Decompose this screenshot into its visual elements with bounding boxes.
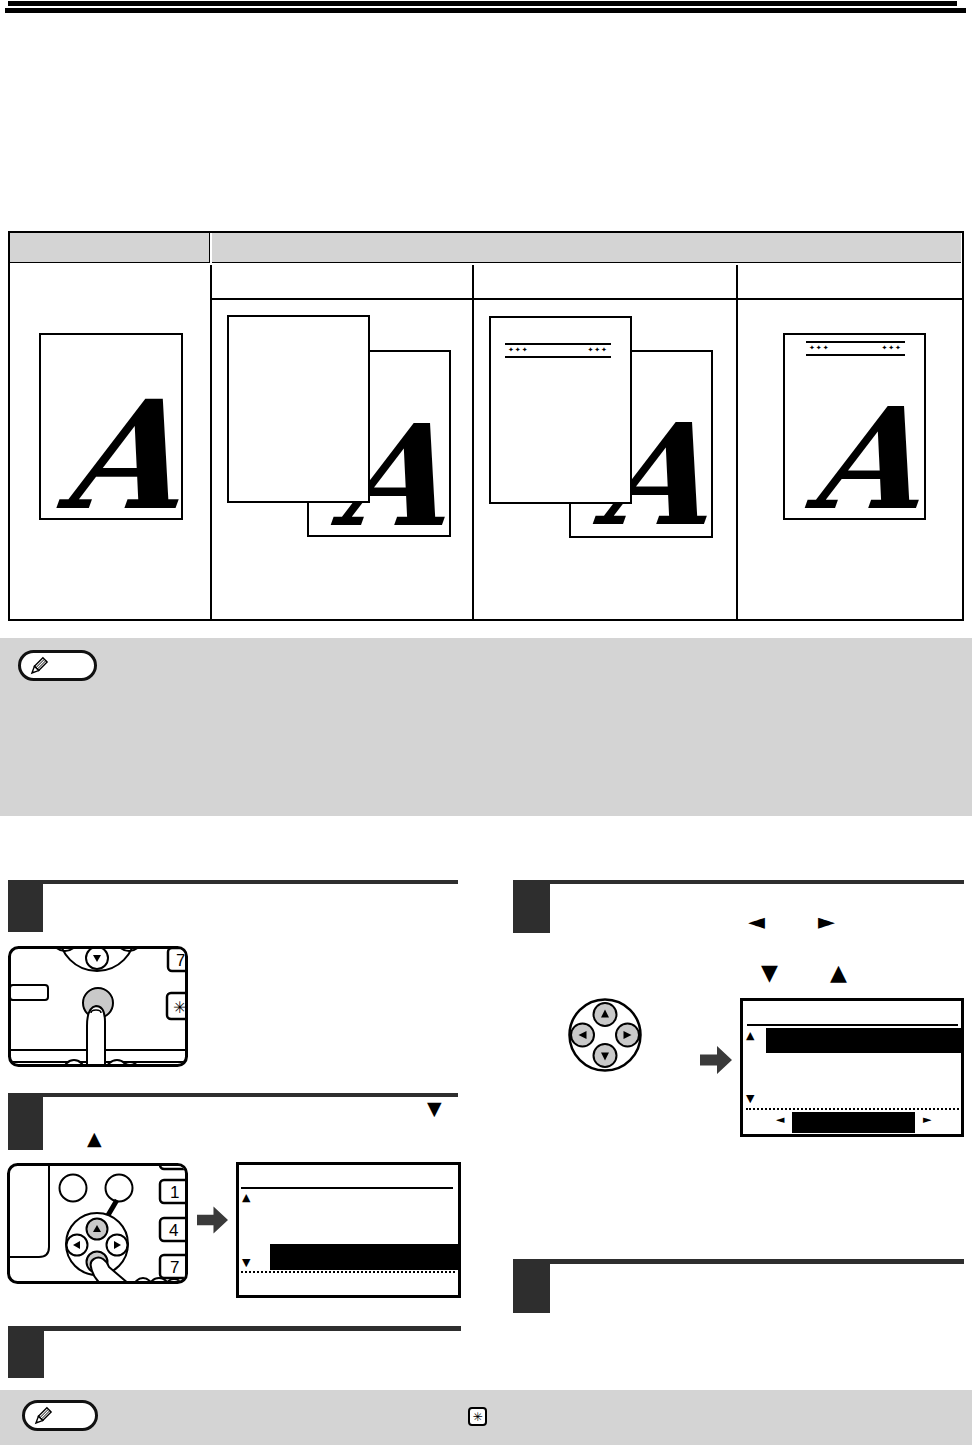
- scroll-up-icon: ▲: [242, 1192, 250, 1203]
- step-2-badge: [8, 1093, 43, 1150]
- lcd-dotted-divider: [746, 1108, 959, 1110]
- asterisk-key: ✳: [167, 993, 188, 1019]
- table-header-copy: [212, 233, 962, 263]
- step-1-rule: [8, 880, 458, 884]
- down-key-icon: ▼: [761, 962, 778, 984]
- corner-marks-left: ✦✦✦: [809, 345, 830, 352]
- top-bar-1: [8, 1, 957, 6]
- arrow-right-icon: [700, 1046, 732, 1074]
- svg-text:✳: ✳: [173, 999, 186, 1016]
- left-indicator-icon: ◄: [776, 1114, 784, 1125]
- scroll-down-icon: ▼: [746, 1093, 754, 1104]
- corner-marks: ✦✦✦ ✦✦✦: [806, 341, 905, 356]
- lcd-title-underline: [241, 1187, 453, 1189]
- up-key-icon: ▲: [87, 1129, 102, 1148]
- lcd-selected-row: [270, 1244, 458, 1270]
- table-subheader-line: [210, 298, 962, 300]
- control-panel-illustration-1: 7 ✳: [8, 946, 188, 1067]
- svg-text:7: 7: [176, 951, 185, 970]
- corner-marks-right: ✦✦✦: [587, 347, 608, 354]
- finger: [87, 1006, 105, 1067]
- up-key-icon: ▲: [830, 962, 847, 984]
- letter-a: A: [57, 401, 185, 511]
- step-1-badge: [8, 880, 43, 932]
- top-bar-2: [5, 8, 966, 13]
- table-divider-2: [472, 265, 474, 620]
- original-sheet: A: [39, 333, 183, 520]
- step-3-badge: [513, 880, 550, 933]
- lcd-screen-1: ▲ ▼ ◄ ►: [740, 998, 964, 1137]
- note-box-2: ✳: [0, 1390, 972, 1445]
- scroll-up-icon: ▲: [746, 1030, 754, 1041]
- svg-text:4: 4: [169, 1221, 178, 1240]
- left-key-icon: ◄: [748, 911, 765, 933]
- lcd-dotted-divider: [241, 1271, 455, 1273]
- lcd-bottom-selected-bar: [792, 1112, 915, 1133]
- manual-page: A A A ✦✦✦ ✦✦✦ ✦✦✦ ✦✦✦ A: [0, 0, 972, 1445]
- copy3-front-sheet: ✦✦✦ ✦✦✦: [489, 316, 632, 504]
- step-3-rule: [513, 880, 964, 884]
- key-7: 7: [160, 1255, 188, 1278]
- table-header-original: [10, 233, 210, 263]
- down-key-icon: ▼: [427, 1099, 442, 1118]
- copy4-sheet: ✦✦✦ ✦✦✦ A: [783, 333, 926, 520]
- step-4-badge: [513, 1259, 550, 1313]
- svg-text:7: 7: [170, 1258, 179, 1277]
- display-window: [10, 985, 48, 1000]
- pencil-icon: [26, 654, 50, 678]
- corner-marks-left: ✦✦✦: [508, 347, 529, 354]
- copy2-front-sheet: [227, 315, 370, 503]
- note-badge: [22, 1400, 98, 1431]
- right-key-icon: ►: [818, 911, 835, 933]
- right-indicator-icon: ►: [923, 1114, 931, 1125]
- svg-text:1: 1: [170, 1183, 179, 1202]
- step-2-rule: [8, 1093, 458, 1097]
- arrow-right-icon: [197, 1206, 228, 1234]
- table-divider-3: [736, 265, 738, 620]
- round-button-2: [106, 1175, 133, 1202]
- arrow-pad-illustration: [566, 997, 644, 1073]
- asterisk-key-label: ✳: [472, 1410, 482, 1424]
- letter-a: A: [806, 408, 925, 510]
- lcd-screen-2: ▲ ▼: [236, 1162, 461, 1298]
- lcd-title-underline: [747, 1024, 958, 1026]
- key-4: 4: [160, 1218, 188, 1241]
- pencil-icon: [30, 1404, 54, 1428]
- step-5-badge: [8, 1326, 44, 1378]
- table-divider-1: [210, 265, 212, 620]
- asterisk-key: ✳: [468, 1407, 487, 1426]
- round-button-1: [60, 1175, 87, 1202]
- corner-marks-right: ✦✦✦: [881, 345, 902, 352]
- control-panel-illustration-2: 1 4 7: [7, 1163, 188, 1284]
- note-badge: [18, 650, 97, 681]
- step-5-rule: [8, 1326, 461, 1331]
- note-box-1: [0, 638, 972, 816]
- step-4-rule: [513, 1259, 964, 1264]
- lcd-selected-row: [766, 1028, 961, 1053]
- corner-marks: ✦✦✦ ✦✦✦: [505, 343, 611, 358]
- scroll-down-icon: ▼: [242, 1257, 250, 1268]
